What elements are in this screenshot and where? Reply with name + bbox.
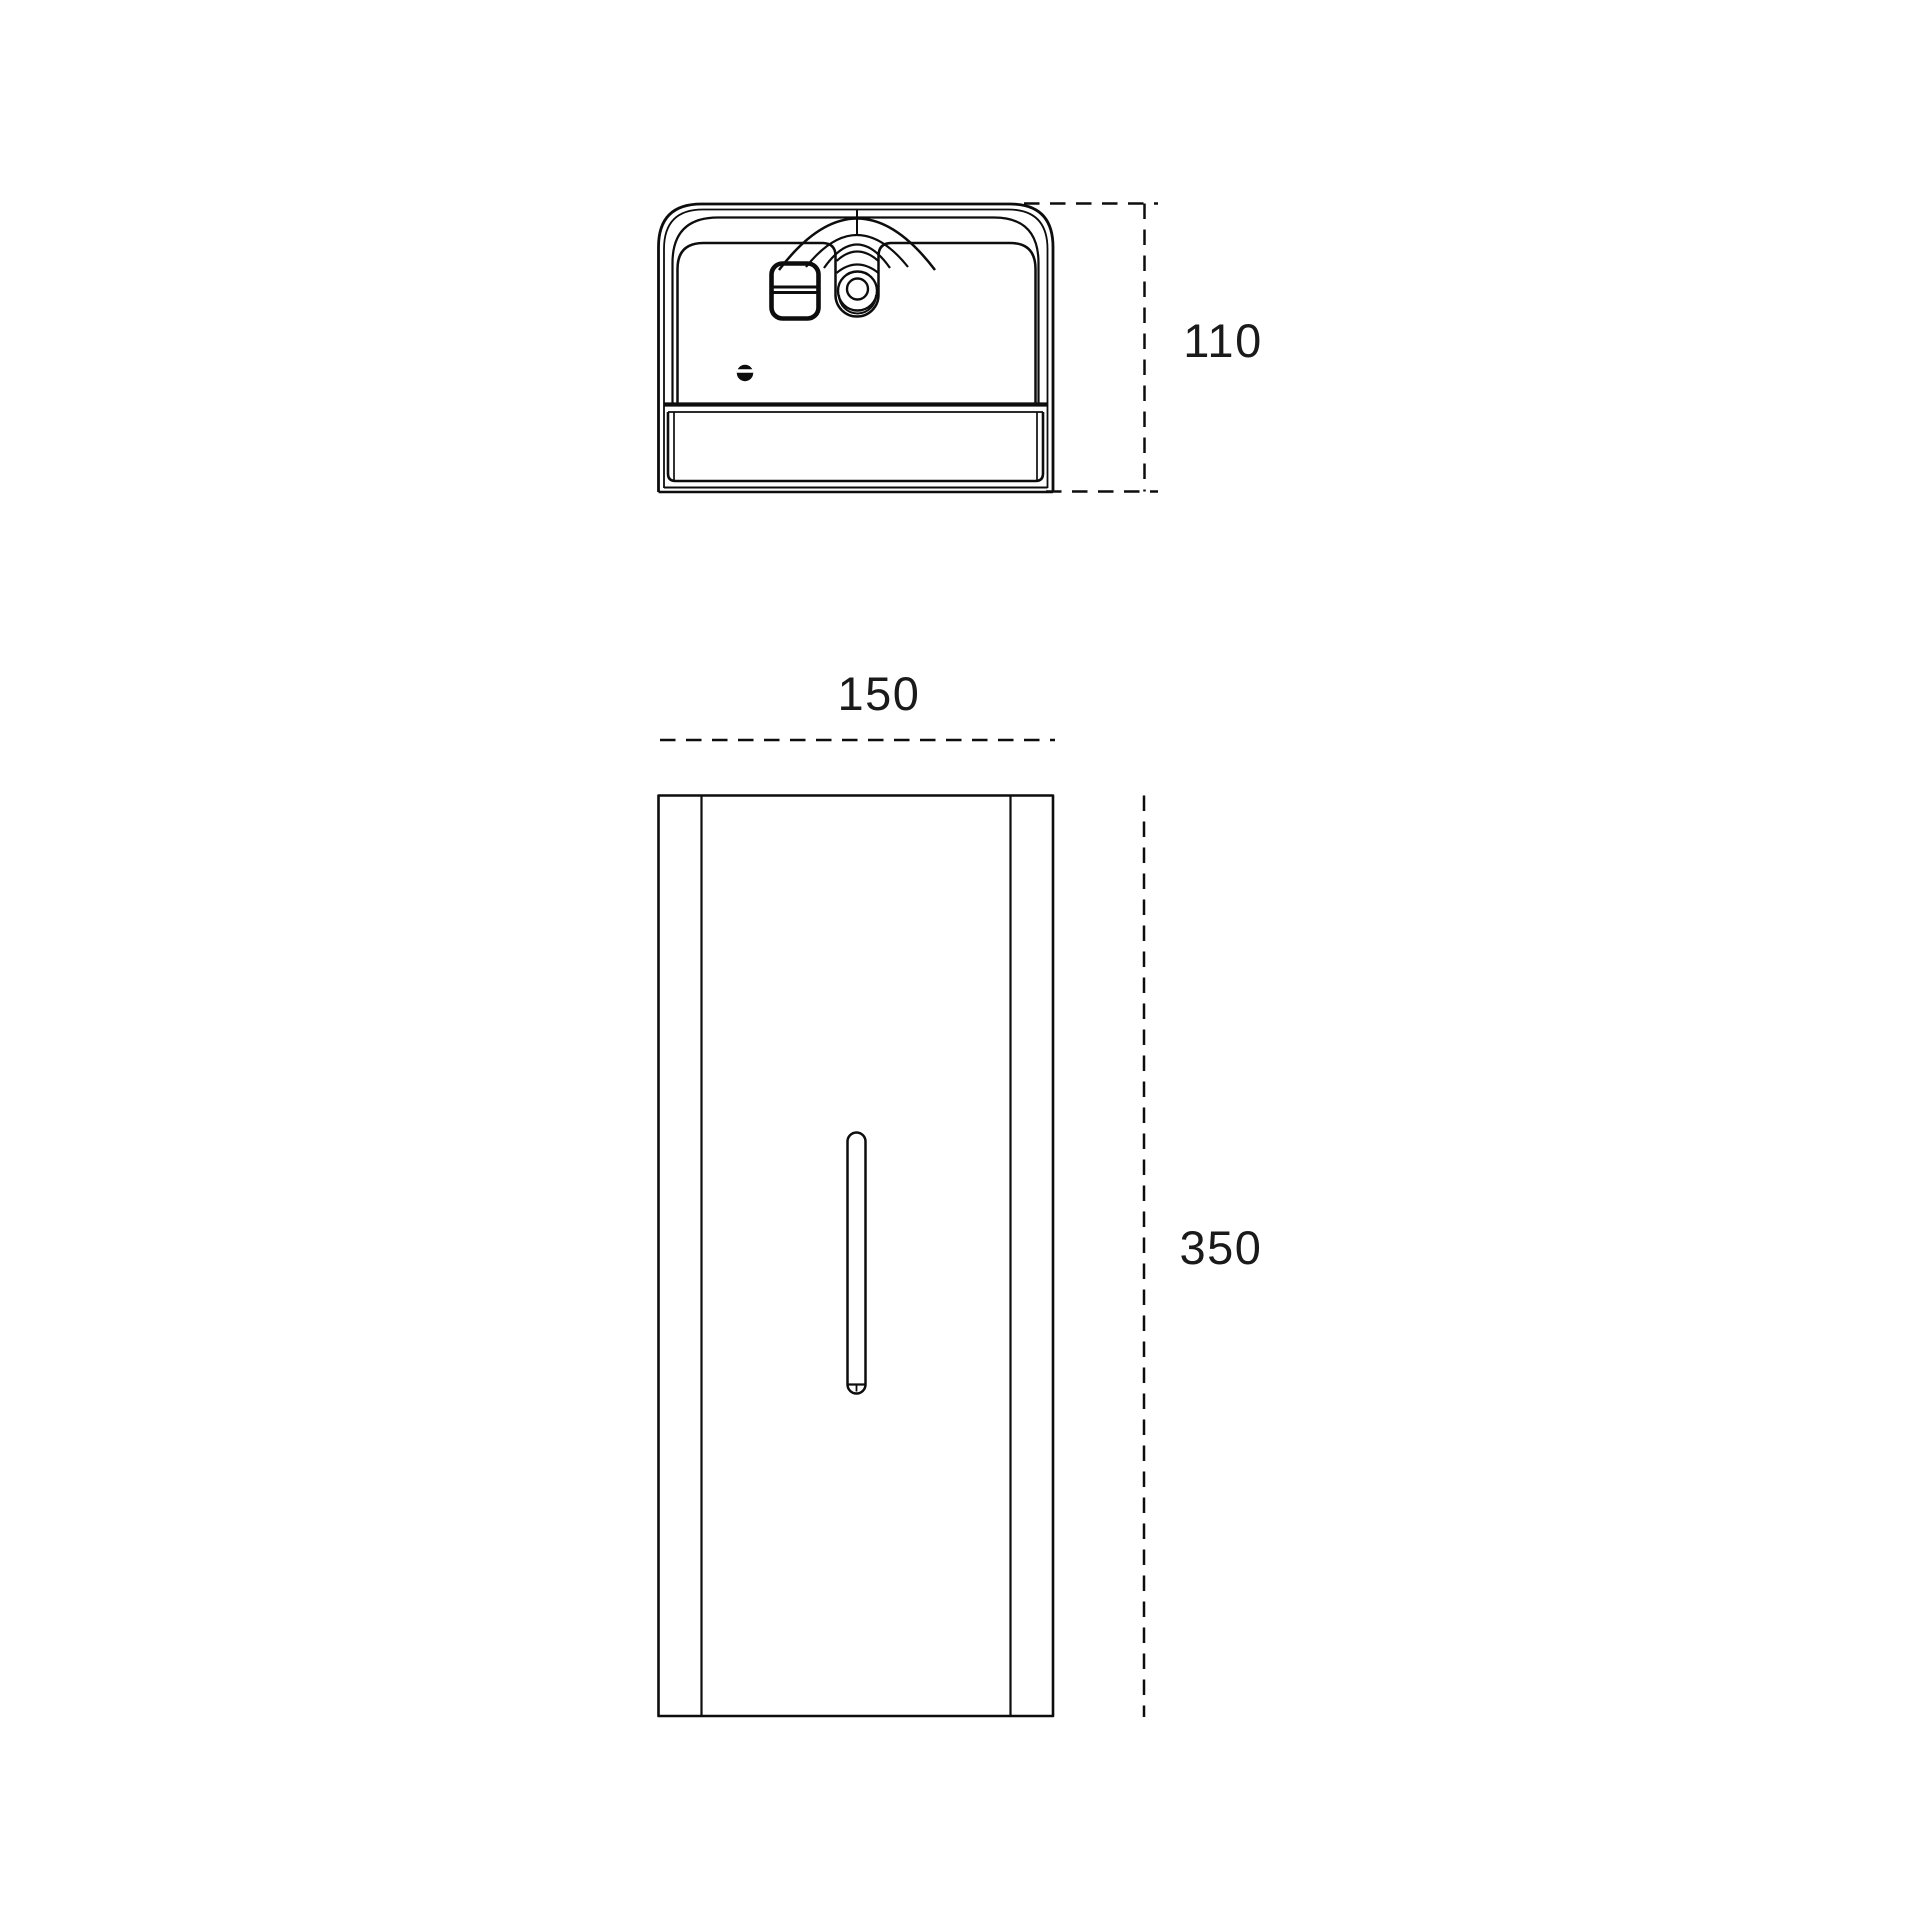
top-view: 110	[659, 204, 1263, 493]
outer-shell-outline	[659, 204, 1054, 492]
refill-door-panel	[678, 243, 1036, 404]
push-bar-outline	[668, 412, 1043, 481]
height-dimension: 350	[1144, 796, 1262, 1718]
technical-drawing-canvas: 110 150 350	[0, 0, 1920, 1920]
body-outline	[659, 796, 1054, 1717]
dispenser-dimension-drawing: 110 150 350	[0, 0, 1920, 1920]
width-dimension: 150	[660, 667, 1055, 740]
front-view: 150 350	[659, 667, 1263, 1717]
dimension-label-width: 150	[838, 667, 921, 720]
sight-window-slot	[848, 1133, 866, 1385]
nozzle-outlet	[847, 279, 868, 300]
screw-head-icon	[737, 365, 753, 381]
nozzle-coil-arc-upper	[837, 252, 879, 262]
depth-dimension: 110	[1024, 204, 1263, 492]
dimension-label-height: 350	[1180, 1221, 1263, 1274]
dimension-label-depth: 110	[1183, 314, 1262, 367]
